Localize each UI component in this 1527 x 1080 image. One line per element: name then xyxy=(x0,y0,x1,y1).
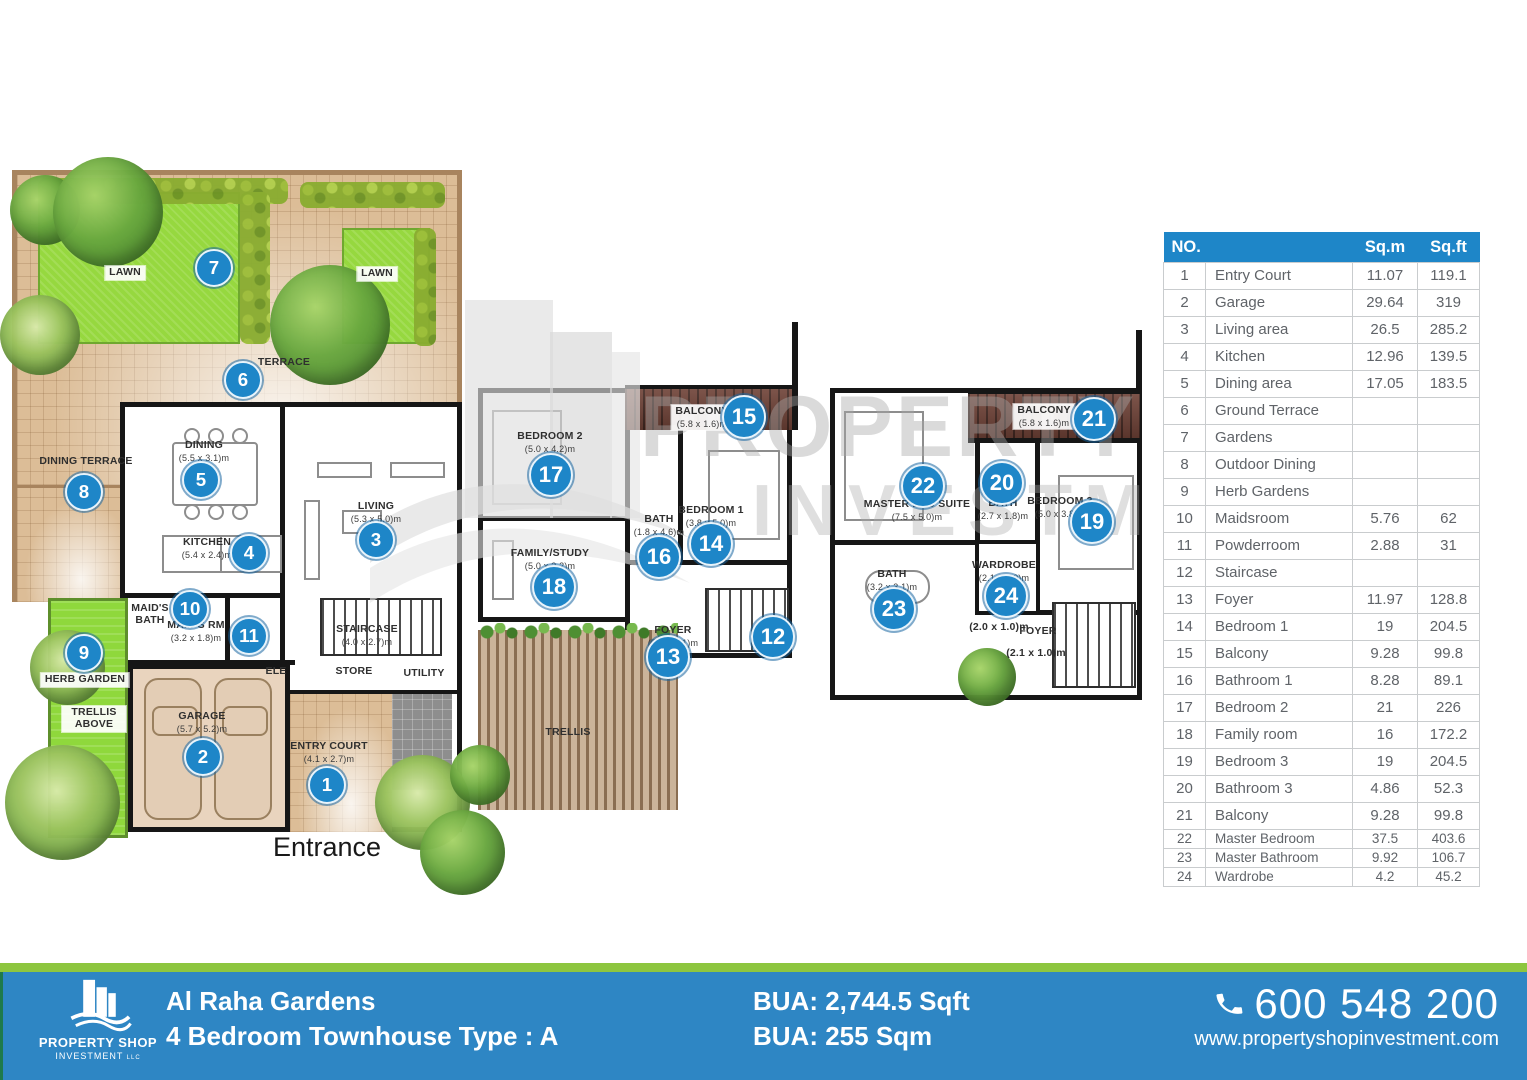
buildings-wave-icon xyxy=(61,978,135,1032)
room-marker: 20 xyxy=(980,461,1024,505)
room-marker: 21 xyxy=(1072,397,1116,441)
room-marker: 13 xyxy=(646,635,690,679)
room-marker: 18 xyxy=(532,565,576,609)
logo-subname: INVESTMENT LLC xyxy=(33,1051,163,1061)
room-marker: 6 xyxy=(224,361,262,399)
room-marker: 8 xyxy=(65,473,103,511)
annotations-layer: LAWNLAWNTERRACEDINING TERRACEDINING(5.5 … xyxy=(0,0,1527,1080)
room-marker: 4 xyxy=(230,534,268,572)
footer: PROPERTY SHOP INVESTMENT LLC Al Raha Gar… xyxy=(0,963,1527,1080)
room-label: TRELLIS ABOVE xyxy=(62,706,126,732)
room-label: ENTRY COURT(4.1 x 2.7)m xyxy=(290,741,367,764)
room-label: STORE xyxy=(336,666,373,678)
room-label: BATH(1.8 x 4.6)m xyxy=(634,514,684,537)
phone-icon xyxy=(1212,987,1246,1021)
room-label: HERB GARDEN xyxy=(41,673,129,687)
room-marker: 3 xyxy=(357,521,395,559)
logo-name: PROPERTY SHOP xyxy=(33,1035,163,1050)
project-name: Al Raha Gardens xyxy=(166,984,558,1019)
bua-sqm: BUA: 255 Sqm xyxy=(753,1019,970,1054)
entrance-label: Entrance xyxy=(273,832,381,863)
room-marker: 9 xyxy=(65,634,103,672)
room-label: (2.1 x 1.0)m xyxy=(1006,648,1066,660)
room-label: FOYER xyxy=(1019,626,1056,638)
room-marker: 12 xyxy=(751,615,795,659)
room-marker: 7 xyxy=(195,249,233,287)
room-marker: 14 xyxy=(689,522,733,566)
room-label: BALCONY(5.8 x 1.6)m xyxy=(1013,404,1074,429)
room-label: TERRACE xyxy=(258,357,310,369)
floorplan-flyer: PROPERTY SHOP INVESTMENT LLC LAWNLAWNTER… xyxy=(0,0,1527,1080)
room-marker: 23 xyxy=(872,587,916,631)
room-marker: 1 xyxy=(308,766,346,804)
room-marker: 19 xyxy=(1070,500,1114,544)
footer-bar: PROPERTY SHOP INVESTMENT LLC Al Raha Gar… xyxy=(0,972,1527,1080)
room-marker: 5 xyxy=(182,461,220,499)
room-marker: 22 xyxy=(901,464,945,508)
room-marker: 24 xyxy=(984,574,1028,618)
room-marker: 17 xyxy=(529,453,573,497)
room-marker: 10 xyxy=(171,590,209,628)
bua-sqft: BUA: 2,744.5 Sqft xyxy=(753,984,970,1019)
room-marker: 11 xyxy=(230,617,268,655)
room-label: UTILITY xyxy=(403,668,444,680)
room-label: LAWN xyxy=(105,266,145,280)
room-label: KITCHEN(5.4 x 2.4)m xyxy=(182,537,232,560)
room-label: DINING(5.5 x 3.1)m xyxy=(179,440,229,463)
room-label: DINING TERRACE xyxy=(39,456,132,468)
room-marker: 15 xyxy=(722,395,766,439)
green-stripe xyxy=(0,963,1527,972)
room-marker: 2 xyxy=(184,738,222,776)
website-url: www.propertyshopinvestment.com xyxy=(1194,1028,1499,1051)
phone-number: 600 548 200 xyxy=(1194,980,1499,1028)
room-label: ELE xyxy=(265,666,286,678)
room-label: TRELLIS xyxy=(545,727,590,739)
room-label: LAWN xyxy=(357,267,397,281)
unit-type: 4 Bedroom Townhouse Type : A xyxy=(166,1019,558,1054)
room-label: BEDROOM 2(5.0 x 4.2)m xyxy=(517,431,582,454)
room-marker: 16 xyxy=(637,535,681,579)
company-logo: PROPERTY SHOP INVESTMENT LLC xyxy=(33,978,163,1074)
room-label: GARAGE(5.7 x 5.2)m xyxy=(177,711,227,734)
room-label: STAIRCASE(4.0 x 2.7)m xyxy=(336,624,398,647)
